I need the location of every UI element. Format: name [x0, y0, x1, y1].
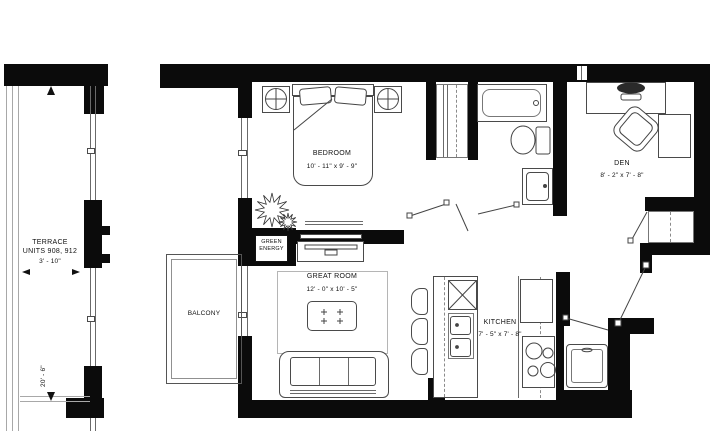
bedroom-dimension: 10' - 11" x 9' - 9" — [272, 163, 392, 171]
terrace-wall-stub — [100, 254, 110, 263]
den-desk-return — [658, 114, 691, 158]
nightstand-left — [262, 86, 290, 113]
terrace-rail-line — [6, 86, 7, 431]
terrace-depth-dimension: 20' - 6" — [40, 350, 48, 402]
window-west — [247, 118, 248, 198]
terrace-wall-stub — [100, 226, 110, 235]
sofa-seat-cushions — [290, 357, 376, 386]
bedroom-label: BEDROOM — [272, 150, 392, 159]
kitchen-dimension: 7' - 5" x 7' - 8" — [450, 331, 550, 339]
window-mullion-tick — [87, 316, 95, 322]
wall-west-segment — [238, 82, 252, 118]
tv-wall-mount — [300, 234, 362, 239]
green-energy-label: GREEN ENERGY — [256, 239, 287, 253]
bathroom-door — [478, 202, 519, 214]
bed — [293, 96, 373, 186]
plant — [255, 193, 297, 231]
kitchen-label: KITCHEN — [455, 319, 545, 328]
island-counter-dashed — [444, 277, 445, 397]
terrace-label: TERRACE — [12, 239, 88, 248]
window-west — [247, 266, 248, 336]
dishwasher-cabinet — [448, 280, 477, 310]
tv-console — [297, 241, 364, 262]
den-window-notch — [577, 66, 587, 80]
terrace-deck-edge — [20, 396, 90, 397]
den-label: DEN — [582, 160, 662, 169]
terrace-rail-line — [12, 86, 13, 431]
window-west — [241, 118, 242, 198]
nightstand-right — [374, 86, 402, 113]
bar-stool — [411, 318, 428, 345]
wall-top-thick — [160, 82, 250, 88]
bedroom-door — [407, 200, 468, 231]
bedroom-closet — [436, 84, 468, 158]
sofa-cushion-divider — [319, 358, 320, 385]
wall-bedroom-east — [426, 82, 436, 160]
sofa-back-line — [290, 393, 376, 394]
bathtub-inner — [482, 89, 541, 117]
wall-entry-closet-bottom — [645, 243, 710, 255]
great-room-dimension: 12' - 0" x 10' - 5" — [272, 286, 392, 294]
wall-laundry-left — [556, 326, 564, 392]
wall-top — [160, 64, 710, 82]
wall-entry-bar — [608, 318, 654, 334]
sofa-back-line — [290, 390, 376, 391]
wall-laundry-bottom — [556, 390, 632, 418]
entry-closet-rod-dashed — [670, 212, 671, 242]
kitchen-sink-bowl — [450, 338, 471, 357]
bed-headboard — [292, 84, 374, 96]
stove — [522, 336, 555, 388]
terrace-width-dimension: 3' - 10" — [20, 258, 80, 266]
terrace-top-wall-step — [84, 86, 104, 114]
bar-stool — [411, 348, 428, 375]
great-room-label: GREAT ROOM — [272, 273, 392, 282]
terrace-rail-line — [18, 86, 19, 431]
wall-bath-east — [553, 82, 567, 216]
green-energy-badge: GREEN ENERGY — [255, 235, 288, 262]
terrace-top-wall — [4, 64, 108, 86]
terrace-units-label: UNITS 908, 912 — [8, 248, 92, 257]
bedroom-bench-line — [305, 224, 363, 225]
wall-entry-stub — [640, 243, 652, 273]
vanity-sink — [526, 172, 549, 201]
closet-door-line — [443, 85, 444, 157]
ottoman — [307, 301, 357, 331]
balcony-inner-rail — [171, 259, 237, 379]
bar-stool — [411, 288, 428, 315]
toilet — [511, 126, 550, 154]
wall-east — [694, 64, 710, 211]
balcony-label: BALCONY — [167, 310, 241, 318]
floor-plan: TERRACE UNITS 908, 912 3' - 10" 20' - 6"… — [0, 0, 717, 431]
closet-rod-dashed — [456, 85, 457, 157]
terrace-deck-edge — [20, 401, 90, 402]
den-window-mullion — [581, 66, 582, 80]
window-mullion-tick — [87, 148, 95, 154]
refrigerator — [520, 279, 553, 323]
den-dimension: 8' - 2" x 7' - 8" — [572, 172, 672, 180]
wall-kitchen-east — [556, 272, 570, 326]
sofa-cushion-divider — [348, 358, 349, 385]
entry-closet-door — [628, 212, 647, 243]
den-desk — [586, 82, 666, 114]
closet-door-line — [447, 85, 448, 157]
window-mullion-tick — [238, 150, 247, 156]
entry-closet — [648, 211, 694, 243]
bedroom-bench-line — [305, 221, 363, 222]
washer-inner — [571, 349, 603, 383]
